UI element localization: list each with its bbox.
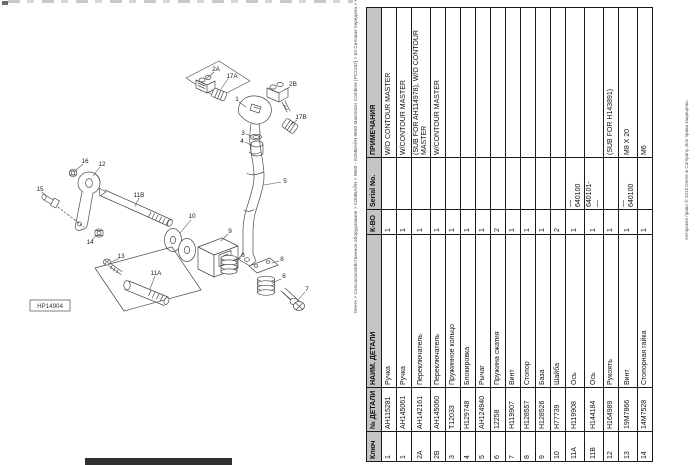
- cell-part-name: Ручка: [397, 235, 412, 388]
- callout-11a: 11A: [151, 270, 163, 277]
- cell-part-number: H128526: [536, 388, 551, 432]
- cell-serial: [536, 158, 551, 210]
- cell-qty: 1: [604, 210, 619, 235]
- cell-serial: [638, 158, 653, 210]
- cell-part-name: Рычаг: [476, 235, 491, 388]
- cell-remarks: [491, 8, 506, 158]
- cell-key: 10: [551, 432, 566, 462]
- table-row: 14 14M7528 Стопорная гайка 1 M6: [638, 8, 653, 462]
- cell-part-number: 12258: [491, 388, 506, 432]
- table-row: 3 T12033 Пружинное кольцо 1: [446, 8, 461, 462]
- cell-serial: [551, 158, 566, 210]
- cell-key: 2B: [431, 432, 446, 462]
- cell-key: 6: [491, 432, 506, 462]
- callout-9: 9: [228, 228, 232, 235]
- callout-3: 3: [241, 130, 245, 137]
- cell-part-number: AH142161: [412, 388, 431, 432]
- table-row: 11B H144184 Ось 1 640101- —: [585, 8, 604, 462]
- table-row: 9 H128526 База 1: [536, 8, 551, 462]
- cell-serial: [506, 158, 521, 210]
- cell-remarks: M8 X 20: [619, 8, 638, 158]
- cell-part-number: H164989: [604, 388, 619, 432]
- cell-key: 4: [461, 432, 476, 462]
- parts-table-rotated: Ключ № ДЕТАЛИ НАИМ. ДЕТАЛИ К-ВО Serial N…: [366, 7, 653, 462]
- cell-part-name: Блокировка: [461, 235, 476, 388]
- cell-key: 11A: [566, 432, 585, 462]
- lever-part: [238, 132, 264, 266]
- exploded-diagram: 1 2A 17A 2B 17B 3 4 5 10 9 6 8 6 7 11B 1…: [0, 0, 360, 465]
- header-part: № ДЕТАЛИ: [367, 388, 382, 432]
- callout-11b: 11B: [134, 192, 145, 199]
- callout-12: 12: [98, 161, 106, 168]
- cell-serial: [382, 158, 397, 210]
- table-row: 6 12258 Пружина сжатия 2: [491, 8, 506, 462]
- table-row: 10 H77739 Шайба 2: [551, 8, 566, 462]
- callout-7: 7: [305, 286, 309, 293]
- header-key: Ключ: [367, 432, 382, 462]
- table-row: 11A H119908 Ось 1 — 640100: [566, 8, 585, 462]
- cell-part-name: Стопорная гайка: [638, 235, 653, 388]
- cell-part-name: Переключатель: [431, 235, 446, 388]
- cell-part-number: H119908: [566, 388, 585, 432]
- cell-part-name: Ручка: [382, 235, 397, 388]
- cell-qty: 1: [431, 210, 446, 235]
- cell-qty: 1: [382, 210, 397, 235]
- spring-b-part: [258, 276, 275, 295]
- cell-remarks: (SUB FOR H143891): [604, 8, 619, 158]
- table-row: 2A AH142161 Переключатель 1 (SUB FOR AH1…: [412, 8, 431, 462]
- header-serial: Serial No.: [367, 158, 382, 210]
- cell-part-name: База: [536, 235, 551, 388]
- callout-15: 15: [36, 186, 44, 193]
- callout-6a: 6: [241, 252, 245, 259]
- table-row: 2B AH145060 Переключатель 1 W/CONTOUR MA…: [431, 8, 446, 462]
- table-header-row: Ключ № ДЕТАЛИ НАИМ. ДЕТАЛИ К-ВО Serial N…: [367, 8, 382, 462]
- washers-part: [165, 229, 196, 262]
- table-row: 1 AH115281 Ручка 1 W/O CONTOUR MASTER: [382, 8, 397, 462]
- header-name: НАИМ. ДЕТАЛИ: [367, 235, 382, 388]
- parts-table-body: 1 AH115281 Ручка 1 W/O CONTOUR MASTER 1 …: [382, 8, 653, 462]
- cell-remarks: [536, 8, 551, 158]
- cell-remarks: [585, 8, 604, 158]
- figure-id: HP14904: [37, 303, 63, 310]
- cell-part-name: Пружинное кольцо: [446, 235, 461, 388]
- cell-qty: 1: [476, 210, 491, 235]
- bolt-part: [281, 288, 305, 311]
- cell-key: 1: [397, 432, 412, 462]
- cell-key: 13: [619, 432, 638, 462]
- cell-serial: [476, 158, 491, 210]
- cell-qty: 1: [521, 210, 536, 235]
- figure-id-box: HP14904: [30, 300, 70, 311]
- cell-serial: — 640100: [619, 158, 638, 210]
- cell-part-number: H129748: [461, 388, 476, 432]
- cell-qty: 1: [446, 210, 461, 235]
- cell-part-name: Переключатель: [412, 235, 431, 388]
- cell-qty: 2: [551, 210, 566, 235]
- cell-remarks: [506, 8, 521, 158]
- cell-qty: 1: [536, 210, 551, 235]
- cell-qty: 1: [461, 210, 476, 235]
- cell-qty: 1: [585, 210, 604, 235]
- cell-key: 11B: [585, 432, 604, 462]
- table-row: 8 H128557 Стопор 1: [521, 8, 536, 462]
- cell-part-number: AH145061: [397, 388, 412, 432]
- callout-8: 8: [280, 256, 284, 263]
- nut-16-part: [69, 169, 77, 177]
- cell-part-name: Стопор: [521, 235, 536, 388]
- cell-serial: 640101- —: [585, 158, 604, 210]
- cell-part-number: AH115281: [382, 388, 397, 432]
- cell-part-number: H77739: [551, 388, 566, 432]
- table-row: 7 H119907 Винт 1: [506, 8, 521, 462]
- cell-serial: [521, 158, 536, 210]
- cell-serial: [491, 158, 506, 210]
- catalog-page: Deere > Сельскохозяйственное оборудовани…: [0, 0, 700, 465]
- cell-part-name: Винт: [619, 235, 638, 388]
- cell-qty: 1: [566, 210, 585, 235]
- cell-qty: 1: [397, 210, 412, 235]
- header-qty: К-ВО: [367, 210, 382, 235]
- cell-part-number: H144184: [585, 388, 604, 432]
- cell-qty: 1: [619, 210, 638, 235]
- cell-remarks: W/CONTOUR MASTER: [431, 8, 446, 158]
- switch-2a-part: [196, 76, 215, 94]
- connector-17a-part: [211, 88, 227, 102]
- nut-14-part: [95, 229, 103, 237]
- cell-part-name: Пружина сжатия: [491, 235, 506, 388]
- cell-part-number: AH145060: [431, 388, 446, 432]
- arm-part: [75, 172, 100, 231]
- cell-remarks: (SUB FOR AH114978), W/O CONTOUR MASTER: [412, 8, 431, 158]
- cell-part-name: Рукоять: [604, 235, 619, 388]
- callout-6b: 6: [282, 273, 286, 280]
- cell-key: 14: [638, 432, 653, 462]
- cell-serial: [431, 158, 446, 210]
- copyright-text: Авторское право © 2019 Deere & Company. …: [684, 99, 689, 240]
- cell-remarks: W/O CONTOUR MASTER: [382, 8, 397, 158]
- callout-2a: 2A: [212, 66, 221, 73]
- cell-remarks: [566, 8, 585, 158]
- callout-1: 1: [235, 96, 239, 103]
- cell-remarks: [476, 8, 491, 158]
- handle-part: [238, 96, 271, 132]
- cell-remarks: [461, 8, 476, 158]
- link-15-part: [42, 194, 84, 227]
- cell-key: 3: [446, 432, 461, 462]
- cell-key: 12: [604, 432, 619, 462]
- parts-table: Ключ № ДЕТАЛИ НАИМ. ДЕТАЛИ К-ВО Serial N…: [366, 7, 653, 462]
- cell-key: 5: [476, 432, 491, 462]
- cell-remarks: [551, 8, 566, 158]
- bottom-bar: [85, 458, 232, 465]
- cell-serial: [461, 158, 476, 210]
- cell-part-number: H119907: [506, 388, 521, 432]
- cell-remarks: [446, 8, 461, 158]
- cell-part-number: 19M7866: [619, 388, 638, 432]
- cell-part-name: Ось: [566, 235, 585, 388]
- table-row: 4 H129748 Блокировка 1: [461, 8, 476, 462]
- shaft-11a-part: [124, 281, 170, 306]
- cell-remarks: W/CONTOUR MASTER: [397, 8, 412, 158]
- cell-part-number: T12033: [446, 388, 461, 432]
- callout-4: 4: [240, 138, 244, 145]
- cell-part-number: H128557: [521, 388, 536, 432]
- cell-key: 9: [536, 432, 551, 462]
- cell-serial: [397, 158, 412, 210]
- callout-2b: 2B: [289, 81, 297, 88]
- cell-serial: [412, 158, 431, 210]
- cell-part-number: 14M7528: [638, 388, 653, 432]
- cell-key: 2A: [412, 432, 431, 462]
- table-row: 5 AH124940 Рычаг 1: [476, 8, 491, 462]
- cell-qty: 2: [491, 210, 506, 235]
- table-row: 13 19M7866 Винт 1 — 640100 M8 X 20: [619, 8, 638, 462]
- cell-qty: 1: [638, 210, 653, 235]
- table-row: 12 H164989 Рукоять 1 (SUB FOR H143891): [604, 8, 619, 462]
- spring-a-part: [221, 255, 237, 274]
- cell-qty: 1: [412, 210, 431, 235]
- cell-serial: [446, 158, 461, 210]
- cell-part-name: Шайба: [551, 235, 566, 388]
- cell-remarks: M6: [638, 8, 653, 158]
- header-remarks: ПРИМЕЧАНИЯ: [367, 8, 382, 158]
- callout-5: 5: [283, 178, 287, 185]
- callout-17a: 17A: [226, 73, 238, 80]
- cell-part-name: Ось: [585, 235, 604, 388]
- callout-16: 16: [81, 158, 89, 165]
- cell-serial: — 640100: [566, 158, 585, 210]
- callout-14: 14: [86, 239, 94, 246]
- cell-part-name: Винт: [506, 235, 521, 388]
- cell-serial: [604, 158, 619, 210]
- table-row: 1 AH145061 Ручка 1 W/CONTOUR MASTER: [397, 8, 412, 462]
- cell-qty: 1: [506, 210, 521, 235]
- cell-key: 8: [521, 432, 536, 462]
- cell-key: 1: [382, 432, 397, 462]
- callout-17b: 17B: [295, 114, 306, 121]
- callout-10: 10: [188, 213, 196, 220]
- cell-key: 7: [506, 432, 521, 462]
- callout-13: 13: [117, 253, 125, 260]
- cell-remarks: [521, 8, 536, 158]
- cell-part-number: AH124940: [476, 388, 491, 432]
